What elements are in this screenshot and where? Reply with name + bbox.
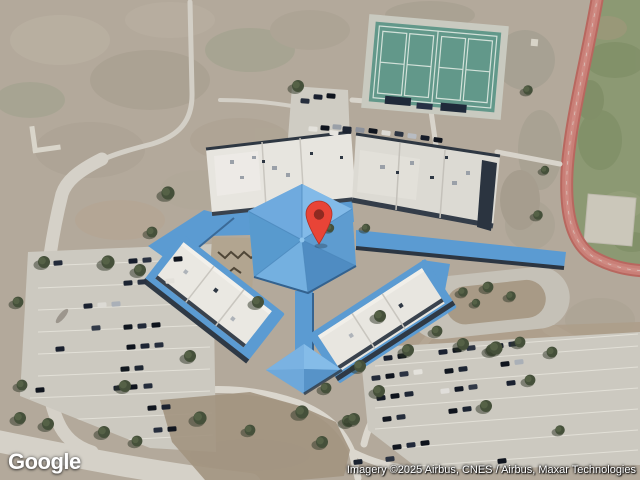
concrete-pad — [584, 194, 636, 246]
map-pin-dot — [314, 209, 324, 219]
map-pin-icon[interactable] — [302, 200, 336, 248]
map-pin-body — [306, 201, 332, 244]
attribution-text: Imagery ©2025 Airbus, CNES / Airbus, Max… — [347, 464, 636, 476]
google-logo[interactable]: Google — [8, 449, 81, 475]
map-viewport: Google Imagery ©2025 Airbus, CNES / Airb… — [0, 0, 640, 480]
tennis-courts — [361, 14, 509, 120]
